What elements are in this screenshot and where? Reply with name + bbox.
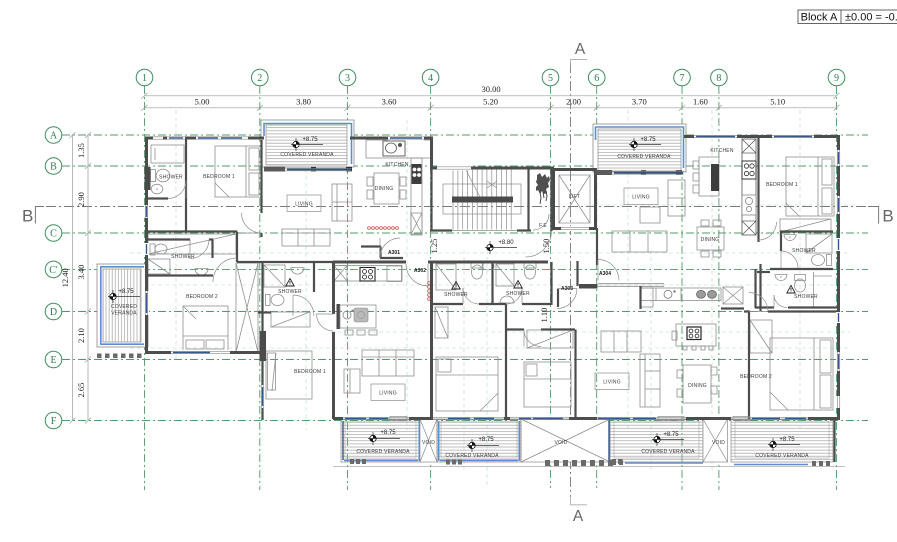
svg-text:COVERED: COVERED bbox=[111, 304, 137, 310]
svg-text:3.80: 3.80 bbox=[296, 96, 311, 106]
svg-text:30.00: 30.00 bbox=[481, 84, 500, 94]
svg-text:6: 6 bbox=[594, 73, 599, 84]
svg-text:A304: A304 bbox=[599, 271, 611, 277]
svg-text:VOID: VOID bbox=[712, 440, 725, 446]
svg-text:BEDROOM 1: BEDROOM 1 bbox=[203, 174, 235, 180]
svg-text:1.25: 1.25 bbox=[429, 239, 439, 254]
svg-text:5: 5 bbox=[548, 73, 553, 84]
svg-text:3.70: 3.70 bbox=[632, 96, 647, 106]
svg-text:SHOWER: SHOWER bbox=[444, 292, 468, 298]
svg-text:A: A bbox=[50, 131, 58, 142]
svg-text:BEDROOM 2: BEDROOM 2 bbox=[186, 294, 218, 300]
svg-text:7: 7 bbox=[680, 73, 685, 84]
svg-text:3.60: 3.60 bbox=[382, 96, 397, 106]
svg-text:A301: A301 bbox=[388, 250, 400, 256]
svg-text:DINING: DINING bbox=[701, 237, 720, 243]
svg-text:2.90: 2.90 bbox=[76, 192, 86, 207]
svg-text:+8.75: +8.75 bbox=[380, 430, 396, 436]
svg-text:2.10: 2.10 bbox=[76, 328, 86, 343]
svg-text:A: A bbox=[573, 508, 584, 525]
svg-text:LIVING: LIVING bbox=[295, 202, 313, 208]
svg-text:SHOWER: SHOWER bbox=[794, 294, 818, 300]
svg-text:B: B bbox=[22, 207, 33, 226]
svg-text:3.40: 3.40 bbox=[76, 265, 86, 280]
svg-text:+8.75: +8.75 bbox=[118, 289, 134, 295]
svg-text:5.10: 5.10 bbox=[770, 96, 785, 106]
svg-text:VOID: VOID bbox=[554, 440, 567, 446]
svg-text:VOID: VOID bbox=[422, 440, 435, 446]
svg-text:COVERED VERANDA: COVERED VERANDA bbox=[280, 152, 334, 158]
svg-text:2: 2 bbox=[257, 73, 262, 84]
svg-text:F: F bbox=[51, 416, 57, 427]
svg-text:4: 4 bbox=[428, 73, 433, 84]
svg-text:SHOWER: SHOWER bbox=[171, 254, 195, 260]
svg-text:DINING: DINING bbox=[375, 186, 394, 192]
svg-text:LIFT: LIFT bbox=[569, 194, 580, 200]
svg-text:5.20: 5.20 bbox=[483, 96, 498, 106]
svg-text:+8.75: +8.75 bbox=[779, 437, 795, 443]
svg-text:C': C' bbox=[49, 265, 58, 276]
svg-text:3: 3 bbox=[345, 73, 350, 84]
svg-text:Block A: Block A bbox=[801, 12, 838, 24]
svg-text:2.00: 2.00 bbox=[566, 96, 581, 106]
svg-text:B: B bbox=[882, 207, 893, 226]
svg-text:SHOWER: SHOWER bbox=[506, 291, 530, 297]
svg-text:C: C bbox=[50, 229, 57, 240]
svg-text:KITCHEN: KITCHEN bbox=[385, 162, 409, 168]
svg-text:COVERED VERANDA: COVERED VERANDA bbox=[445, 453, 499, 459]
svg-text:LIVING: LIVING bbox=[632, 195, 650, 201]
svg-text:COVERED VERANDA: COVERED VERANDA bbox=[755, 453, 809, 459]
svg-text:F.E: F.E bbox=[539, 223, 547, 229]
svg-text:12.40: 12.40 bbox=[60, 268, 70, 287]
svg-text:1.10: 1.10 bbox=[539, 308, 549, 323]
svg-text:COVERED VERANDA: COVERED VERANDA bbox=[617, 154, 671, 160]
svg-text:KITCHEN: KITCHEN bbox=[710, 148, 734, 154]
svg-text:1.35: 1.35 bbox=[76, 143, 86, 158]
svg-text:D: D bbox=[50, 307, 57, 318]
svg-text:+8.75: +8.75 bbox=[302, 137, 318, 143]
svg-text:+8.80: +8.80 bbox=[498, 240, 514, 246]
svg-text:LIVING: LIVING bbox=[603, 380, 621, 386]
svg-text:1.60: 1.60 bbox=[693, 96, 708, 106]
svg-text:LIVING: LIVING bbox=[379, 391, 397, 397]
svg-text:E: E bbox=[50, 355, 56, 366]
svg-text:2.65: 2.65 bbox=[76, 383, 86, 398]
svg-text:SHOWER: SHOWER bbox=[159, 175, 183, 181]
svg-text:B: B bbox=[50, 162, 57, 173]
svg-text:BEDROOM 1: BEDROOM 1 bbox=[766, 182, 798, 188]
svg-text:A303: A303 bbox=[561, 286, 573, 292]
svg-text:+8.75: +8.75 bbox=[663, 432, 679, 438]
svg-text:A302: A302 bbox=[414, 268, 426, 274]
svg-text:VERANDA: VERANDA bbox=[111, 311, 137, 317]
svg-text:COVERED VERANDA: COVERED VERANDA bbox=[356, 449, 410, 455]
svg-text:SHOWER: SHOWER bbox=[792, 248, 816, 254]
svg-text:+8.75: +8.75 bbox=[640, 137, 656, 143]
svg-text:±0.00 = -0.2: ±0.00 = -0.2 bbox=[845, 12, 897, 24]
svg-text:DINING: DINING bbox=[688, 383, 707, 389]
svg-text:BEDROOM 2: BEDROOM 2 bbox=[740, 374, 772, 380]
svg-text:BEDROOM 1: BEDROOM 1 bbox=[294, 369, 326, 375]
svg-text:9: 9 bbox=[834, 73, 839, 84]
svg-text:8: 8 bbox=[716, 73, 721, 84]
svg-text:1: 1 bbox=[142, 73, 147, 84]
svg-text:A: A bbox=[575, 41, 586, 58]
svg-text:COVERED VERANDA: COVERED VERANDA bbox=[641, 449, 695, 455]
svg-text:+8.75: +8.75 bbox=[478, 437, 494, 443]
svg-text:SHOWER: SHOWER bbox=[278, 289, 302, 295]
svg-text:5.00: 5.00 bbox=[195, 96, 210, 106]
